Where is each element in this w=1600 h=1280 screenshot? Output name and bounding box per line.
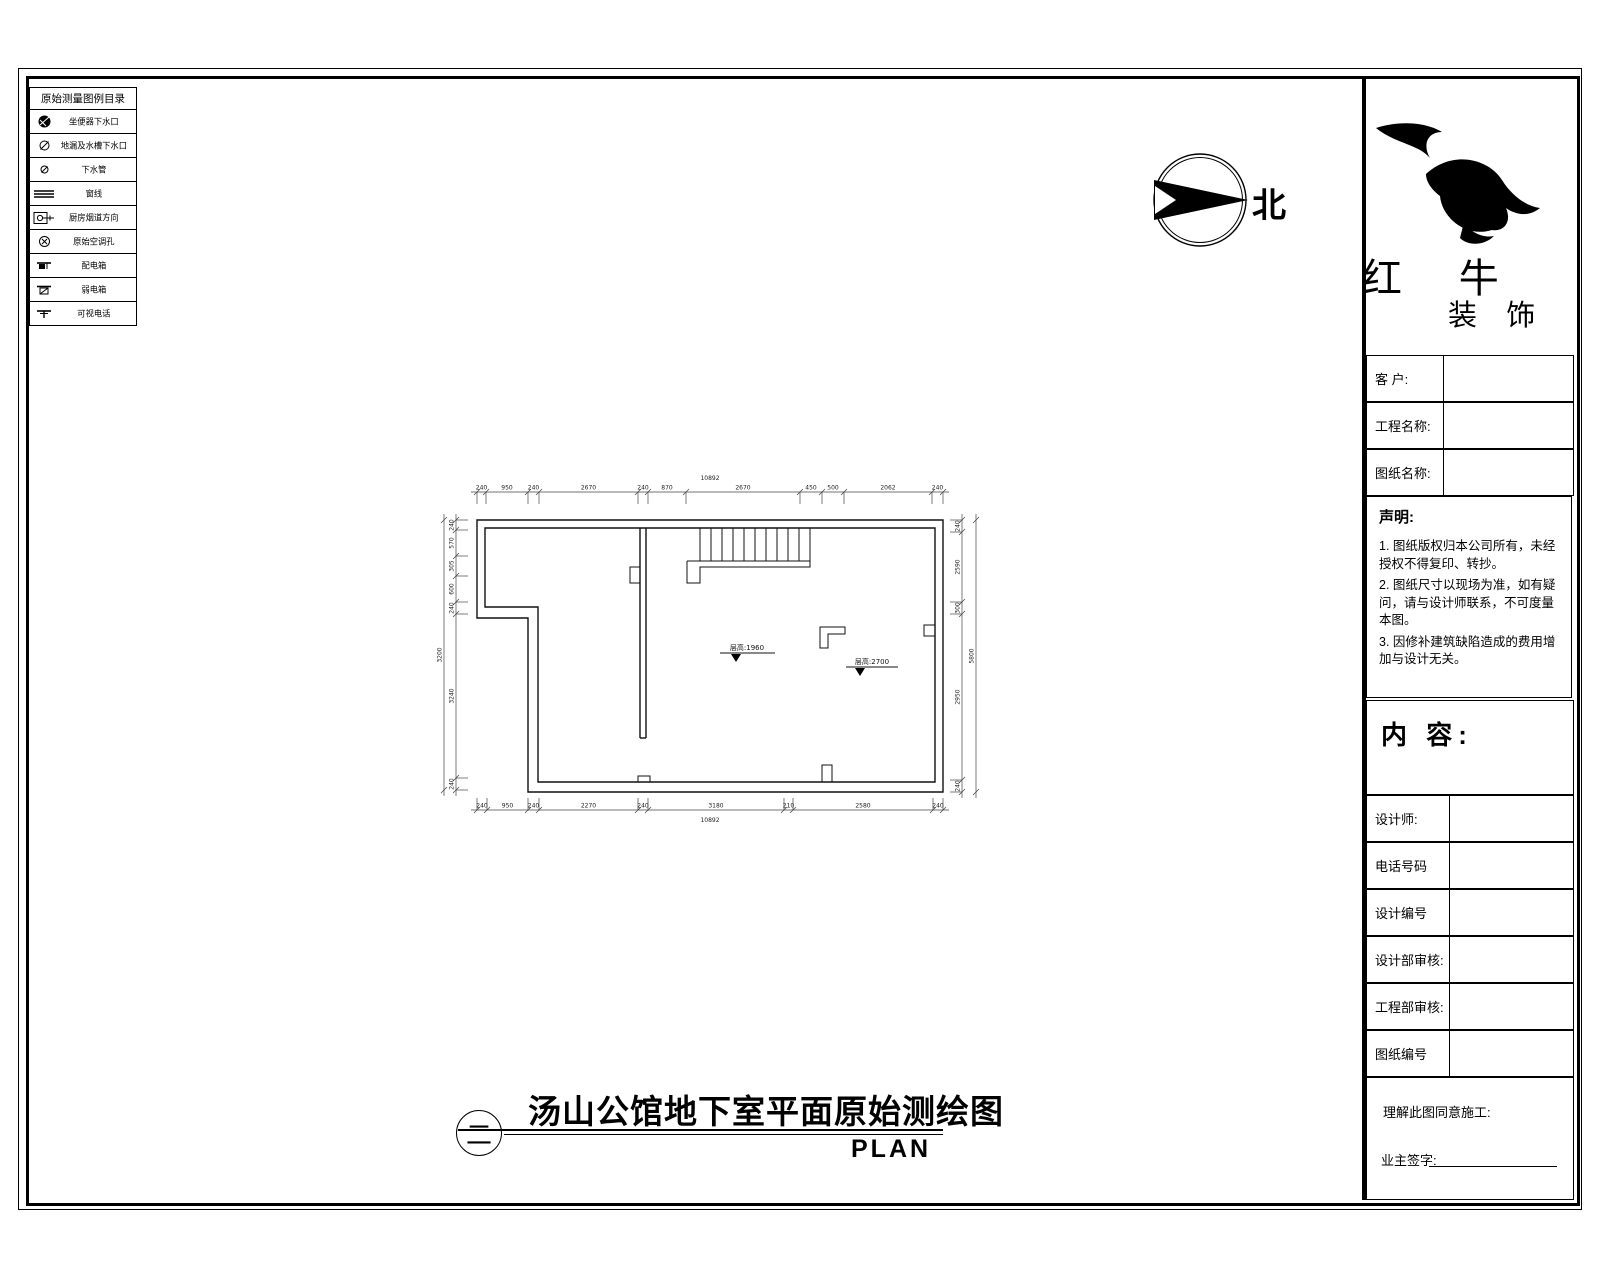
row-label: 图纸编号 (1367, 1031, 1449, 1076)
level-label: 层高:2700 (855, 657, 889, 666)
svg-text:2062: 2062 (880, 485, 895, 492)
stairs (687, 528, 810, 583)
legend-label: 配电箱 (58, 260, 130, 272)
svg-text:240: 240 (955, 780, 962, 792)
legend-title: 原始测量图例目录 (30, 88, 136, 110)
brand-subname: 装 饰 (1448, 292, 1545, 334)
field-label: 图纸名称: (1367, 450, 1443, 495)
row-value (1449, 937, 1573, 982)
svg-text:240: 240 (637, 803, 649, 810)
row-designer: 设计师: (1366, 795, 1574, 842)
svg-text:240: 240 (932, 803, 944, 810)
field-value (1443, 450, 1573, 495)
field-value (1443, 403, 1573, 448)
svg-text:2670: 2670 (735, 485, 750, 492)
row-design-number: 设计编号 (1366, 889, 1574, 936)
field-label: 工程名称: (1367, 403, 1443, 448)
row-value (1449, 796, 1573, 841)
window-line-icon (30, 189, 58, 199)
figure-index-badge: 二 (456, 1110, 502, 1156)
weak-power-box-icon (30, 284, 58, 296)
content-label: 内 容: (1367, 701, 1573, 752)
legend-label: 下水管 (58, 164, 130, 176)
svg-text:2670: 2670 (581, 485, 596, 492)
statement-title: 声明: (1379, 507, 1565, 528)
svg-text:10892: 10892 (700, 475, 719, 482)
svg-text:210: 210 (783, 803, 795, 810)
row-engineering-dept-review: 工程部审核: (1366, 983, 1574, 1030)
north-label: 北 (1252, 178, 1286, 227)
legend-table: 原始测量图例目录 坐便器下水口 地漏及水槽下水口 下水管 窗线 (29, 87, 137, 326)
svg-text:3200: 3200 (437, 647, 444, 662)
svg-text:240: 240 (637, 485, 649, 492)
svg-text:240: 240 (528, 803, 540, 810)
statement-box: 声明: 1. 图纸版权归本公司所有，未经授权不得复印、转抄。 2. 图纸尺寸以现… (1366, 496, 1572, 698)
row-value (1449, 843, 1573, 888)
agree-label: 理解此图同意施工: (1383, 1102, 1491, 1121)
svg-text:240: 240 (528, 485, 540, 492)
signature-line (1429, 1166, 1557, 1167)
svg-text:240: 240 (955, 520, 962, 532)
legend-label: 窗线 (58, 188, 130, 200)
legend-row: 配电箱 (30, 254, 136, 278)
svg-text:240: 240 (476, 803, 488, 810)
svg-text:950: 950 (502, 803, 514, 810)
drawing-title: 汤山公馆地下室平面原始测绘图 (528, 1085, 1004, 1133)
figure-index: 二 (466, 1115, 492, 1152)
floor-drain-icon (30, 139, 58, 152)
svg-text:570: 570 (449, 537, 456, 549)
floor-plan: 层高:1960 层高:2700 240950240267024087026704… (425, 440, 995, 840)
row-phone: 电话号码 (1366, 842, 1574, 889)
row-label: 电话号码 (1367, 843, 1449, 888)
svg-text:450: 450 (805, 485, 817, 492)
video-phone-icon (30, 308, 58, 320)
legend-label: 坐便器下水口 (58, 116, 130, 128)
signature-box: 理解此图同意施工: 业主签字: (1366, 1077, 1574, 1200)
ac-hole-icon (30, 235, 58, 248)
legend-row: 窗线 (30, 182, 136, 206)
legend-label: 弱电箱 (58, 284, 130, 296)
level-label: 层高:1960 (730, 643, 764, 652)
svg-text:600: 600 (449, 583, 456, 595)
svg-text:3240: 3240 (449, 688, 456, 703)
legend-row: 弱电箱 (30, 278, 136, 302)
row-value (1449, 890, 1573, 935)
svg-text:500: 500 (827, 485, 839, 492)
content-box: 内 容: (1366, 700, 1574, 795)
legend-label: 原始空调孔 (58, 236, 130, 248)
row-label: 工程部审核: (1367, 984, 1449, 1029)
legend-label: 厨房烟道方向 (58, 212, 130, 224)
svg-text:300: 300 (955, 602, 962, 614)
power-box-icon (30, 260, 58, 272)
row-sheet-number: 图纸编号 (1366, 1030, 1574, 1077)
row-value (1449, 1031, 1573, 1076)
legend-row: 下水管 (30, 158, 136, 182)
row-value (1449, 984, 1573, 1029)
svg-text:10892: 10892 (700, 817, 719, 824)
statement-note: 2. 图纸尺寸以现场为准，如有疑问，请与设计师联系，不可度量本图。 (1379, 577, 1565, 630)
legend-row: 地漏及水槽下水口 (30, 134, 136, 158)
north-arrow-icon (1130, 146, 1260, 256)
svg-text:3180: 3180 (708, 803, 723, 810)
svg-text:5800: 5800 (969, 648, 976, 663)
row-design-dept-review: 设计部审核: (1366, 936, 1574, 983)
row-label: 设计师: (1367, 796, 1449, 841)
svg-text:2950: 2950 (955, 689, 962, 704)
level-markers: 层高:1960 层高:2700 (720, 643, 898, 676)
svg-text:2580: 2580 (855, 803, 870, 810)
svg-text:240: 240 (476, 485, 488, 492)
field-label: 客 户: (1367, 356, 1443, 401)
svg-text:2590: 2590 (955, 559, 962, 574)
svg-text:2270: 2270 (581, 803, 596, 810)
legend-label: 地漏及水槽下水口 (58, 140, 130, 152)
row-label: 设计部审核: (1367, 937, 1449, 982)
drain-pipe-icon (30, 164, 58, 175)
svg-text:240: 240 (449, 602, 456, 614)
kitchen-flue-icon (30, 211, 58, 225)
field-row-client: 客 户: (1366, 355, 1574, 402)
svg-text:870: 870 (661, 485, 673, 492)
svg-text:305: 305 (449, 560, 456, 572)
drawing-sheet: 原始测量图例目录 坐便器下水口 地漏及水槽下水口 下水管 窗线 (0, 0, 1600, 1280)
field-row-sheet-name: 图纸名称: (1366, 449, 1574, 496)
statement-note: 3. 因修补建筑缺陷造成的费用增加与设计无关。 (1379, 634, 1565, 669)
legend-label: 可视电话 (58, 308, 130, 320)
toilet-drain-icon (30, 114, 58, 129)
level-triangle-icon (855, 668, 865, 676)
legend-row: 坐便器下水口 (30, 110, 136, 134)
plan-label: PLAN (851, 1135, 931, 1164)
svg-text:240: 240 (449, 778, 456, 790)
legend-row: 可视电话 (30, 302, 136, 325)
field-row-project-name: 工程名称: (1366, 402, 1574, 449)
field-value (1443, 356, 1573, 401)
brand-logo-icon (1368, 100, 1540, 250)
legend-row: 原始空调孔 (30, 230, 136, 254)
svg-text:240: 240 (932, 485, 944, 492)
svg-text:950: 950 (501, 485, 513, 492)
row-label: 设计编号 (1367, 890, 1449, 935)
svg-text:240: 240 (449, 519, 456, 531)
level-triangle-icon (731, 654, 741, 662)
statement-note: 1. 图纸版权归本公司所有，未经授权不得复印、转抄。 (1379, 538, 1565, 573)
legend-row: 厨房烟道方向 (30, 206, 136, 230)
